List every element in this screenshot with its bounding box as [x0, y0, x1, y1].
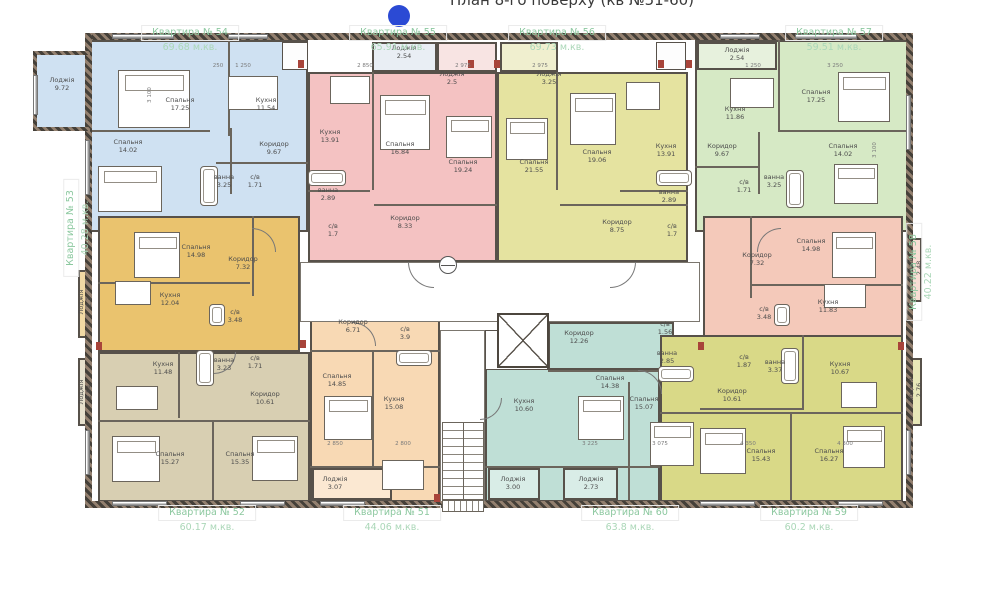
interior-wall: [372, 352, 374, 466]
room-label: Лоджія2.3: [77, 290, 93, 315]
bed: [578, 396, 624, 440]
room-label: Спальня14.02: [829, 142, 858, 158]
bed: [834, 164, 878, 204]
room-label: Лоджія3.00: [501, 475, 526, 491]
bathtub: [658, 366, 694, 382]
interior-wall: [695, 166, 759, 168]
interior-wall: [90, 130, 210, 132]
room-label: с/в1.87: [737, 353, 751, 369]
staircase: [442, 422, 484, 500]
plumbing-riser-mark: [434, 494, 440, 502]
room-label: Кухня12.04: [160, 291, 180, 307]
room-label: с/в1.7: [667, 222, 677, 238]
room-label: Коридор8.75: [602, 218, 632, 234]
room-label: Спальня14.02: [114, 138, 143, 154]
room-label: с/в3.48: [228, 308, 242, 324]
dimension-label: 2 975: [532, 63, 548, 69]
plumbing-riser-mark: [96, 342, 102, 350]
apartment-label-51: Квартира № 5144.06 м.кв.: [343, 505, 441, 535]
bathtub: [786, 170, 804, 208]
room-label: ванна2.89: [659, 188, 679, 204]
interior-wall: [700, 408, 804, 410]
room-label: Спальня16.27: [815, 447, 844, 463]
floor-plan-canvas: План 8-го поверху (кв №51-60) Спальня17.…: [0, 0, 1000, 614]
room-label: Кухня11.48: [153, 360, 173, 376]
room-label: Кухня15.08: [384, 395, 404, 411]
interior-wall: [778, 40, 780, 132]
apartment-label-57: Квартира № 5759.51 м.кв.: [785, 25, 883, 55]
dimension-label: 2 800: [395, 441, 411, 447]
apartment-label-60: Квартира № 6063.8 м.кв.: [581, 505, 679, 535]
room-label: Коридор6.71: [338, 318, 368, 334]
room-label: Спальня14.38: [596, 374, 625, 390]
entrance-steps: [442, 500, 484, 512]
room-label: Лоджія2.73: [579, 475, 604, 491]
room-label: Кухня13.91: [656, 142, 676, 158]
plumbing-riser-mark: [658, 60, 664, 68]
bathtub: [656, 170, 692, 186]
room-label: Спальня15.27: [156, 450, 185, 466]
dining-table: [730, 78, 774, 108]
exterior-wall: [33, 127, 90, 131]
interior-wall: [778, 130, 908, 132]
dining-table: [116, 386, 158, 410]
plumbing-riser-mark: [898, 342, 904, 350]
dimension-label: 4 350: [740, 441, 756, 447]
room-label: Спальня14.98: [797, 237, 826, 253]
room-label: Коридор12.26: [564, 329, 594, 345]
room-label: Коридор10.61: [717, 387, 747, 403]
dining-table: [382, 460, 424, 490]
bathtub: [396, 350, 432, 366]
bed: [832, 232, 876, 278]
bed: [446, 116, 492, 158]
apartment-label-59: Квартира № 5960.2 м.кв.: [760, 505, 858, 535]
dimension-label: 3 225: [582, 441, 598, 447]
room-label: Кухня10.67: [830, 360, 850, 376]
room-label: ванна3.23: [214, 356, 234, 372]
plumbing-riser-mark: [686, 60, 692, 68]
dimension-label: 1 250: [745, 63, 761, 69]
utility-shaft: [282, 42, 308, 70]
interior-wall: [212, 422, 214, 500]
room-label: Коридор7.32: [742, 251, 772, 267]
room-label: Коридор7.32: [228, 255, 258, 271]
plumbing-riser-mark: [494, 60, 500, 68]
bed: [324, 396, 372, 440]
plumbing-riser-mark: [698, 342, 704, 350]
room-label: Спальня21.55: [520, 158, 549, 174]
bed: [843, 426, 885, 468]
bed: [112, 436, 160, 482]
room-label: с/в3.48: [757, 305, 771, 321]
bed: [700, 428, 746, 474]
interior-wall: [660, 412, 903, 414]
bed: [570, 93, 616, 145]
room-label: Коридор10.61: [250, 390, 280, 406]
apartment-label-52: Квартира № 5260.17 м.кв.: [158, 505, 256, 535]
room-label: с/в1.71: [248, 354, 262, 370]
room-label: Лоджія2.54: [725, 46, 750, 62]
room-label: Спальня15.07: [630, 395, 659, 411]
bed: [134, 232, 180, 278]
window: [720, 34, 760, 39]
bathtub: [774, 304, 790, 326]
room-label: Спальня17.25: [166, 96, 195, 112]
room-label: с/в1.56: [658, 320, 672, 336]
elevator-shaft: [497, 313, 549, 368]
room-label: Кухня10.60: [514, 397, 534, 413]
interior-wall: [98, 420, 310, 422]
dimension-label: 3 100: [147, 87, 153, 103]
dining-table: [841, 382, 877, 408]
plan-title: План 8-го поверху (кв №51-60): [450, 0, 694, 9]
window: [906, 430, 911, 475]
room-label: ванна3.37: [765, 358, 785, 374]
room-label: с/в3.9: [400, 325, 410, 341]
dimension-label: 250: [213, 63, 224, 69]
room-label: с/в1.71: [248, 173, 262, 189]
room-label: ванна3.25: [214, 173, 234, 189]
interior-wall: [374, 204, 497, 206]
exterior-wall: [33, 51, 90, 55]
room-label: Кухня13.91: [320, 128, 340, 144]
room-label: Лоджія2.5: [440, 70, 465, 86]
dimension-label: 3 100: [872, 142, 878, 158]
room-label: Лоджія3.25: [537, 70, 562, 86]
dimension-label: 3 250: [827, 63, 843, 69]
room-label: Спальня19.24: [449, 158, 478, 174]
room-label: Коридор9.67: [259, 140, 289, 156]
room-label: Кухня11.86: [725, 105, 745, 121]
room-label: Коридор8.33: [390, 214, 420, 230]
dimension-label: 2 850: [327, 441, 343, 447]
interior-wall: [758, 132, 760, 194]
level-stamp: [439, 256, 457, 274]
room-label: Спальня14.98: [182, 243, 211, 259]
bathtub: [196, 350, 214, 386]
dining-table: [115, 281, 151, 305]
apartment-label-58: Квартира № 5840.22 м.кв.: [906, 223, 936, 321]
dimension-label: 2 850: [357, 63, 373, 69]
window: [700, 501, 755, 506]
dining-table: [626, 82, 660, 110]
window: [85, 430, 90, 475]
plumbing-riser-mark: [300, 340, 306, 348]
dimension-label: 4 300: [837, 441, 853, 447]
dimension-label: 2 975: [455, 63, 471, 69]
interior-wall: [372, 72, 374, 190]
apartment-label-54: Квартира № 5469.68 м.кв.: [141, 25, 239, 55]
plumbing-riser-mark: [298, 60, 304, 68]
dining-table: [330, 76, 370, 104]
bathtub: [308, 170, 346, 186]
interior-wall: [485, 466, 660, 468]
apartment-label-55: Квартира № 5565.91 м.кв.: [349, 25, 447, 55]
interior-wall: [556, 72, 558, 190]
room-label: Лоджія2.76: [907, 378, 923, 403]
interior-wall: [802, 335, 804, 410]
bathtub: [209, 304, 225, 326]
room-label: Спальня14.85: [323, 372, 352, 388]
room-label: Спальня19.06: [583, 148, 612, 164]
room-label: с/в1.71: [737, 178, 751, 194]
dimension-label: 3 075: [652, 441, 668, 447]
window: [33, 75, 38, 115]
window: [906, 95, 911, 150]
room-label: ванна2.85: [657, 349, 677, 365]
room-label: Лоджія2.54: [77, 380, 93, 405]
room-label: Спальня17.25: [802, 88, 831, 104]
room-label: Спальня16.84: [386, 140, 415, 156]
interior-wall: [216, 162, 308, 164]
room-label: ванна2.89: [318, 186, 338, 202]
room-label: Коридор9.67: [707, 142, 737, 158]
apartment-label-53: Квартира № 5340.28 м.кв.: [63, 179, 93, 277]
bed: [506, 118, 548, 160]
interior-wall: [178, 352, 180, 418]
apartment-label-56: Квартира № 5669.73 м.кв.: [508, 25, 606, 55]
room-label: с/в1.7: [328, 222, 338, 238]
room-label: Спальня15.43: [747, 447, 776, 463]
interior-wall: [790, 414, 792, 502]
blue-location-marker[interactable]: [388, 5, 410, 27]
room-label: Кухня11.54: [256, 96, 276, 112]
room-label: Лоджія9.72: [50, 76, 75, 92]
room-label: Кухня11.83: [818, 298, 838, 314]
room-label: Спальня15.35: [226, 450, 255, 466]
dimension-label: 1 250: [235, 63, 251, 69]
interior-wall: [560, 204, 688, 206]
bed: [838, 72, 890, 122]
bed: [98, 166, 162, 212]
bed: [252, 436, 298, 481]
room-label: Лоджія3.07: [323, 475, 348, 491]
room-label: ванна3.25: [764, 173, 784, 189]
